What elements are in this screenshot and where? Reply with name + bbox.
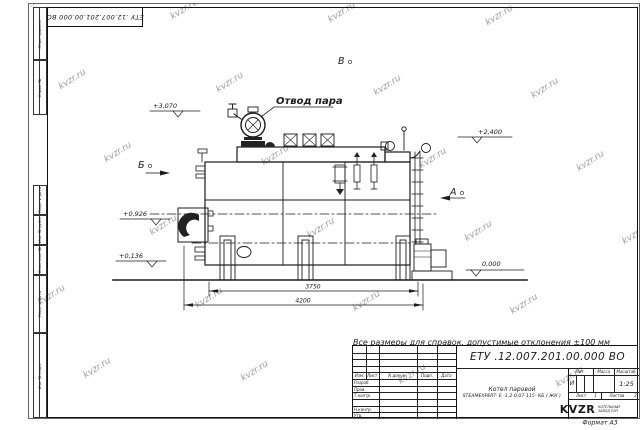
margin-label: Инв. № подл. [38, 362, 42, 388]
sheet-label: Лист [576, 393, 586, 398]
sheets-value: 2 [634, 393, 637, 398]
hdr-massa: Масса [597, 369, 610, 374]
lit-value: И [570, 380, 575, 387]
margin-label: Подп. и дата [38, 291, 42, 317]
col-podp: Подп. [421, 373, 433, 378]
margin-block-vzam-inv: Взам. инв. № [33, 245, 47, 275]
col-data: Дата [441, 373, 451, 378]
company-name: КОТЕЛЬНЫЙ ЗАВОД РЭП [598, 405, 644, 413]
margin-block-inv-podl: Инв. № подл. [33, 333, 47, 418]
hdr-masshtab: Масштаб [617, 369, 636, 374]
company-line2: ЗАВОД РЭП [598, 410, 618, 412]
lit-value-cell: И [568, 375, 576, 392]
margin-label: Справ. № [38, 78, 42, 97]
margin-block-perv-primen: Перв. примен. [33, 7, 47, 60]
margin-block-podp-data-upper: Подп. и дата [33, 185, 47, 215]
product-name-cell: Котел паровой STEAMEXPERT- Е -1,2-0,07-1… [456, 368, 568, 419]
margin-label: Взам. инв. № [38, 247, 42, 273]
col-izm: Изм. [355, 373, 364, 378]
margin-label: Инв. № дубл. [38, 217, 42, 243]
format-label: Формат А3 [569, 419, 631, 426]
margin-block-sprav-no: Справ. № [33, 60, 47, 115]
row-razrab: Разраб. [354, 380, 370, 385]
title-block: Изм. Лист N докум. Подп. Дата Разраб. Пр… [352, 345, 638, 418]
company-line1: КОТЕЛЬНЫЙ [598, 406, 620, 408]
margin-label: Перв. примен. [38, 19, 42, 48]
sheet-cell: Лист 1 [568, 392, 601, 399]
product-name-line1: Котел паровой [488, 386, 535, 393]
col-list: Лист [367, 373, 377, 378]
doc-number-text: ЕТУ .12.007.201.00.000 ВО [470, 351, 625, 363]
row-utv: Утв. [354, 413, 362, 418]
row-tkontr: Т.контр. [354, 393, 371, 398]
sheets-cell: Листов 2 [601, 392, 639, 399]
margin-block-podp-data-lower: Подп. и дата [33, 275, 47, 333]
product-name-line2: STEAMEXPERT- Е -1,2-0,07-115- КБ ( ЖК ) [463, 393, 561, 398]
sheets-label: Листов [609, 393, 624, 398]
company-cell: KVZR КОТЕЛЬНЫЙ ЗАВОД РЭП [568, 399, 639, 419]
scale-value: 1:25 [619, 380, 634, 388]
sheet-value: 1 [594, 393, 597, 398]
doc-number-cell: ЕТУ .12.007.201.00.000 ВО [456, 346, 639, 368]
top-left-stamp: ЕТУ .12.007.201.00.000 ВО [47, 7, 143, 27]
row-prov: Пров. [354, 387, 366, 392]
kvzr-logo-text: KVZR [560, 403, 595, 416]
col-ndokum: N докум. [389, 373, 408, 378]
margin-block-inv-dubl: Инв. № дубл. [33, 215, 47, 245]
margin-label: Подп. и дата [38, 187, 42, 213]
scale-value-cell: 1:25 [614, 375, 639, 392]
hdr-lit: Лит. [576, 369, 585, 374]
row-nkontr: Н.контр. [354, 407, 372, 412]
top-left-stamp-text: ЕТУ .12.007.201.00.000 ВО [46, 13, 143, 21]
